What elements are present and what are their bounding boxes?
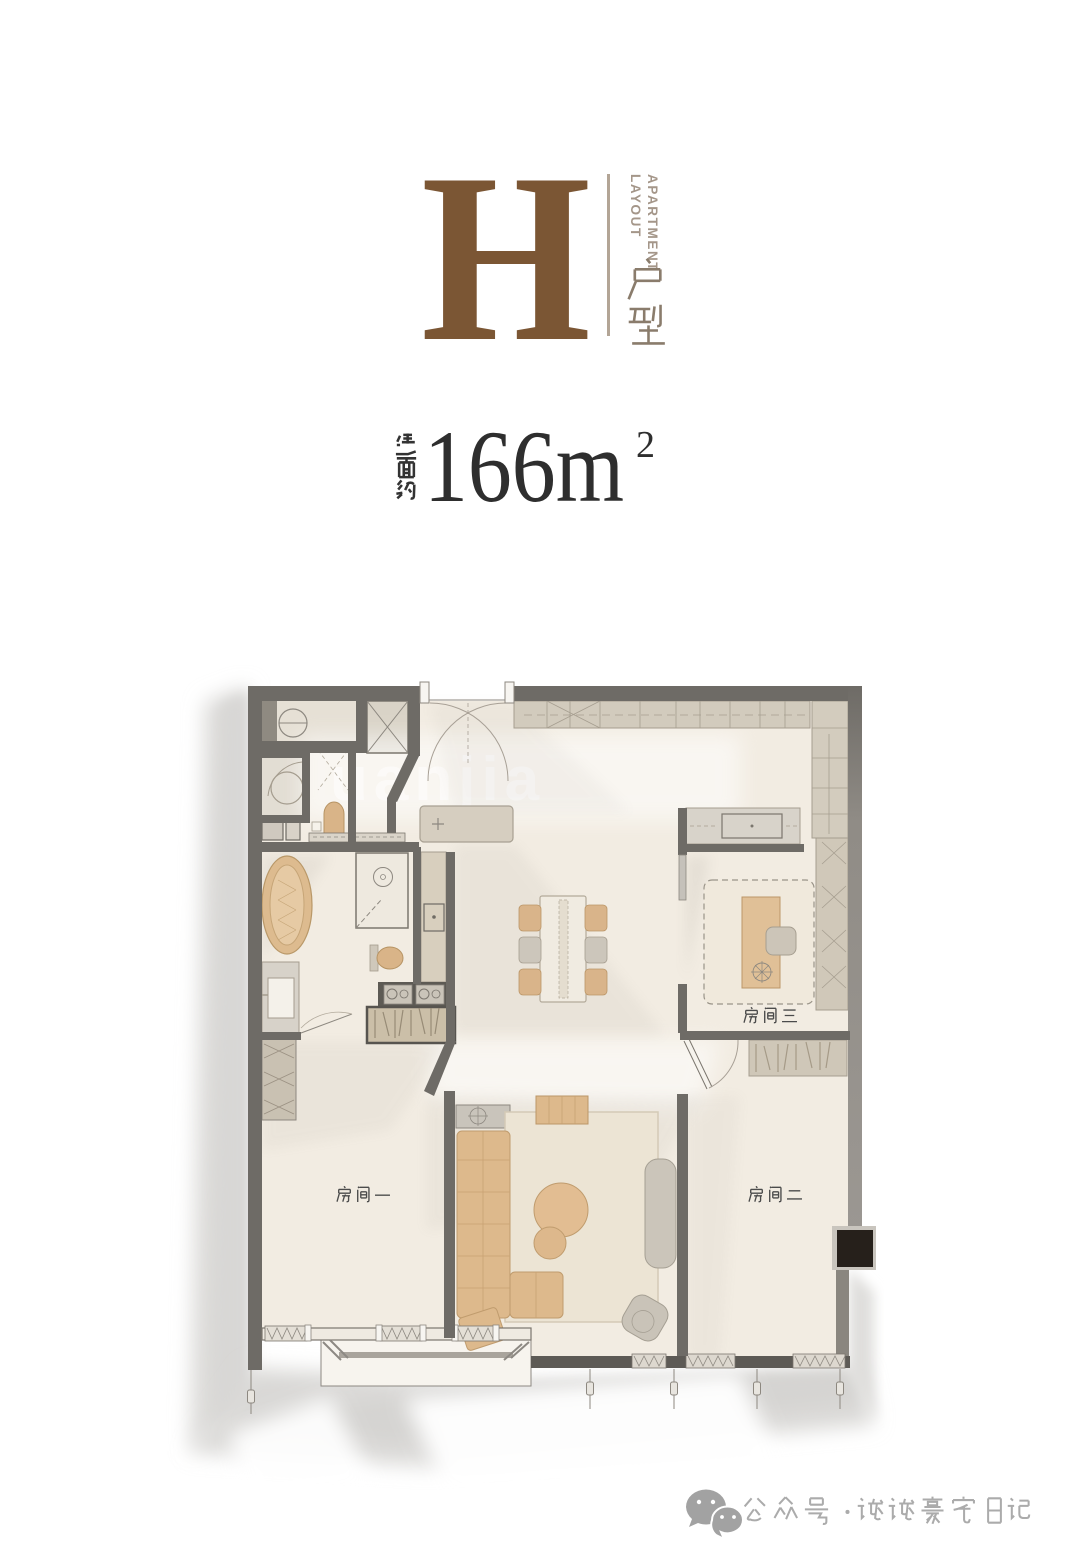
svg-text:166m: 166m [424,410,624,524]
svg-text:H: H [421,124,591,392]
svg-text:2: 2 [636,424,655,466]
svg-text:APARTMENT: APARTMENT [645,174,660,272]
svg-text:LAYOUT: LAYOUT [628,174,643,238]
